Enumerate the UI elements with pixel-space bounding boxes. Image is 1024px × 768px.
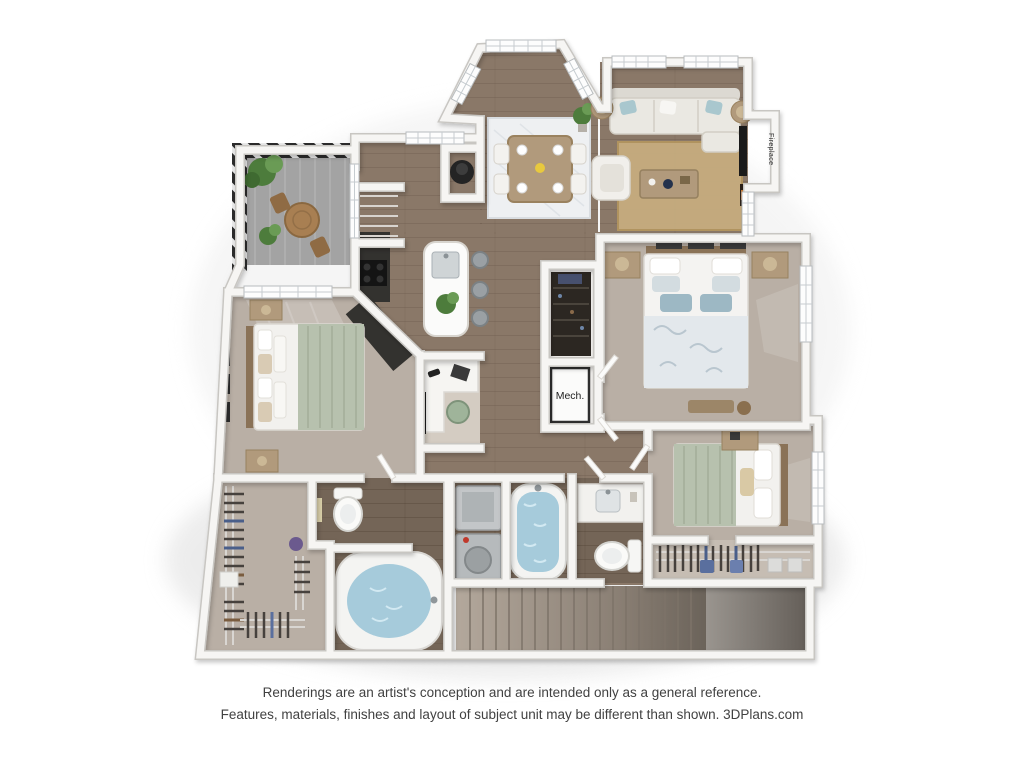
mech-label: Mech.: [556, 390, 585, 402]
balcony-slider-door: [350, 164, 359, 238]
bedroom-third-pillow-accent: [740, 468, 754, 496]
hall-toilet: [595, 540, 641, 572]
garden-tub-water: [347, 564, 431, 638]
master-bag: [737, 401, 751, 415]
hallway-window: [406, 132, 464, 144]
closet-bag-1: [700, 560, 714, 573]
disclaimer-line2: Features, materials, finishes and layout…: [0, 704, 1024, 726]
sofa-chaise: [702, 132, 740, 152]
wine-closet: [551, 272, 591, 356]
coffee-table: [640, 170, 698, 198]
master-pillow-3: [652, 276, 680, 292]
master-pillow-4: [712, 276, 740, 292]
bedroom-left-window: [244, 286, 332, 298]
bedroom-third: [656, 428, 810, 573]
balcony-table: [285, 203, 319, 237]
dryer-control: [463, 537, 469, 543]
dining-chair-2: [494, 174, 509, 194]
cooktop: [360, 260, 387, 286]
disclaimer-line1: Renderings are an artist's conception an…: [0, 682, 1024, 704]
master-pillow-1: [650, 258, 680, 274]
bar-stool-1: [472, 252, 488, 268]
floorplan-svg: Mech.: [0, 0, 1024, 768]
living-window-2: [684, 56, 738, 68]
dining-centerpiece: [535, 163, 545, 173]
closet-bag-2: [730, 560, 743, 573]
bedroom-third-pillow-2: [754, 488, 772, 518]
sofa-pillow-white: [659, 100, 677, 115]
bar-stool-2: [472, 282, 488, 298]
armchair: [592, 156, 630, 200]
hall-tub-faucet: [535, 485, 542, 492]
laundry-basket: [289, 537, 303, 551]
master-window: [800, 266, 812, 342]
water-heater-closet: [450, 160, 474, 184]
garden-tub: [336, 552, 442, 650]
disclaimer: Renderings are an artist's conception an…: [0, 682, 1024, 726]
dining-chair-3: [571, 144, 586, 164]
dining-chair-4: [571, 174, 586, 194]
floorplan-page: Mech.: [0, 0, 1024, 768]
bar-stool-3: [472, 310, 488, 326]
fireplace-label: Fireplace: [767, 133, 774, 165]
living-window-side: [742, 192, 754, 236]
pillow-3: [258, 378, 272, 398]
hall-bathtub: [510, 484, 566, 580]
dining-chair-1: [494, 144, 509, 164]
hall-vanity: [578, 484, 644, 522]
stairwell-void: [706, 586, 806, 652]
bedroom-third-window: [812, 452, 824, 524]
hall-bathtub-water: [517, 492, 559, 572]
storage-box: [220, 572, 238, 587]
office-chair: [447, 401, 469, 423]
closet-box-2: [788, 558, 802, 572]
living-window-1: [612, 56, 666, 68]
stairs: [456, 586, 706, 652]
bay-window-center: [486, 40, 556, 52]
master-pillow-blue-1: [660, 294, 692, 312]
master-pillow-2: [712, 258, 742, 274]
dining-room: [488, 103, 594, 218]
tv-fireplace: [739, 126, 747, 176]
pillow-4: [258, 402, 272, 422]
bedroom-third-pillow-1: [754, 450, 772, 480]
master-pillow-blue-2: [700, 294, 732, 312]
closet-box-1: [768, 558, 782, 572]
master-toilet: [334, 488, 362, 531]
pillow-1: [258, 330, 272, 350]
master-bench: [688, 400, 734, 413]
mech-closet: Mech.: [551, 368, 589, 422]
pillow-2: [258, 354, 272, 374]
staircase: [456, 586, 806, 652]
